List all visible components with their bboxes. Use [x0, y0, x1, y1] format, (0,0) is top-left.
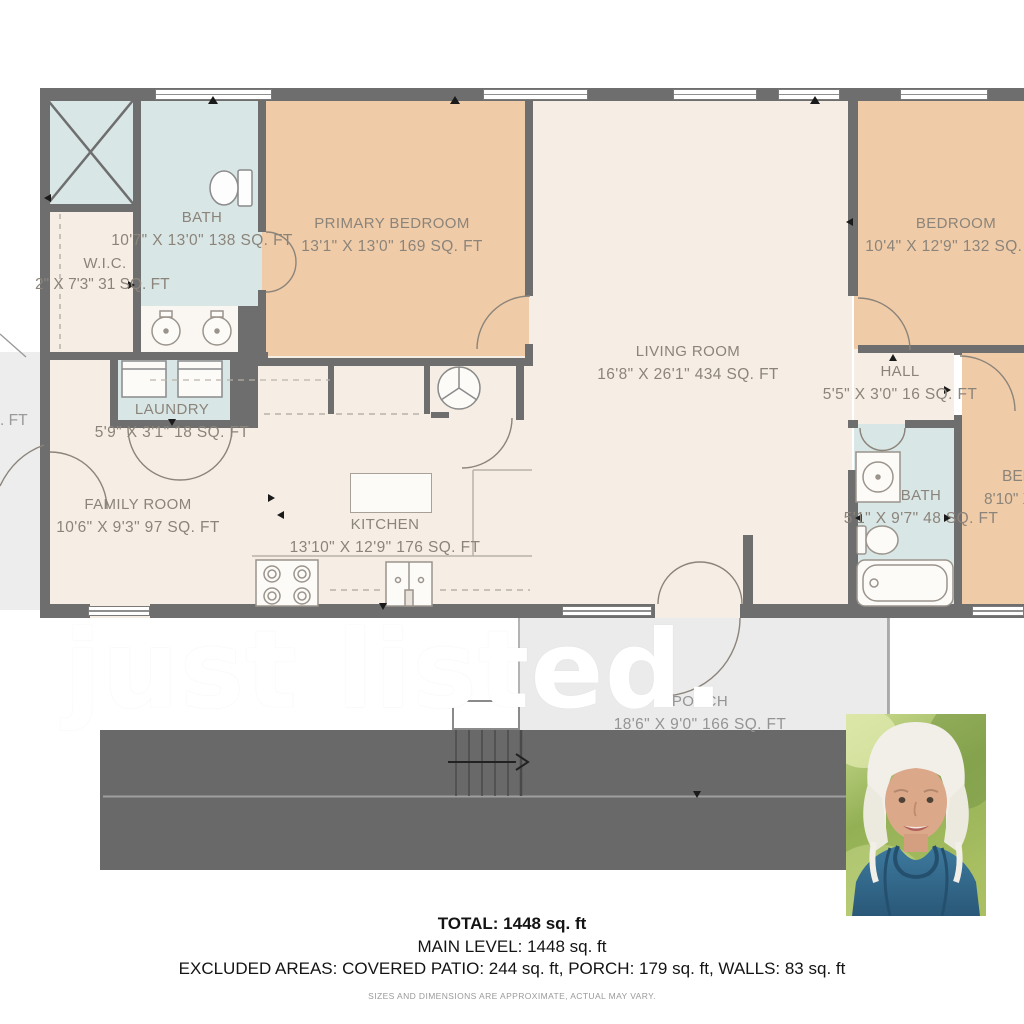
window	[673, 89, 757, 100]
room-name: LAUNDRY	[42, 398, 302, 421]
wall	[858, 345, 1024, 353]
disclaimer-text: SIZES AND DIMENSIONS ARE APPROXIMATE, AC…	[0, 991, 1024, 1001]
label-primary-bedroom: PRIMARY BEDROOM 13'1" X 13'0" 169 SQ. FT	[262, 212, 522, 258]
window	[155, 89, 272, 100]
room-dims: 5'5" X 3'0" 16 SQ. FT	[770, 383, 1024, 406]
covered-patio-band	[100, 730, 890, 870]
wall	[516, 366, 524, 420]
bath-vanity-area	[141, 306, 238, 352]
room-dims: 13'10" X 12'9" 176 SQ. FT	[255, 536, 515, 559]
room-dims: 13'1" X 13'0" 169 SQ. FT	[262, 235, 522, 258]
wall	[424, 366, 430, 414]
room-name: KITCHEN	[255, 513, 515, 536]
floorplan-flyer: BATH 10'7" X 13'0" 138 SQ. FT W.I.C. 2" …	[0, 0, 1024, 1024]
label-hall: HALL 5'5" X 3'0" 16 SQ. FT	[770, 360, 1024, 406]
window	[778, 89, 840, 100]
summary-block: TOTAL: 1448 sq. ft MAIN LEVEL: 1448 sq. …	[0, 913, 1024, 981]
label-bedroom-right-dims: 8'10" X 1	[984, 491, 1024, 509]
summary-total: TOTAL: 1448 sq. ft	[0, 913, 1024, 936]
room-name: FAMILY ROOM	[8, 493, 268, 516]
window	[900, 89, 988, 100]
wall	[848, 96, 858, 296]
kitchen-island	[350, 473, 432, 513]
wall	[328, 366, 334, 414]
room-dims: 5'9" X 3'1" 18 SQ. FT	[42, 421, 302, 444]
wall	[431, 412, 449, 418]
summary-excluded: EXCLUDED AREAS: COVERED PATIO: 244 sq. f…	[0, 958, 1024, 981]
window	[972, 606, 1024, 616]
room-dims: 5'1" X 9'7" 48 SQ. FT	[790, 507, 1024, 530]
label-bedroom-right-name: BEDROOM	[1002, 468, 1024, 486]
wall	[525, 344, 533, 366]
wall	[848, 420, 858, 428]
room-dims: 10'6" X 9'3" 97 SQ. FT	[8, 516, 268, 539]
room-name: HALL	[770, 360, 1024, 383]
wall	[954, 345, 962, 355]
room-shower	[44, 96, 139, 208]
label-left-partial-name: 0	[0, 388, 1, 406]
watermark-text: just listed.	[64, 608, 725, 733]
label-left-partial-dims: . FT	[0, 412, 28, 430]
wall	[525, 96, 533, 296]
wall	[743, 535, 753, 605]
label-kitchen: KITCHEN 13'10" X 12'9" 176 SQ. FT	[255, 513, 515, 559]
label-family-room: FAMILY ROOM 10'6" X 9'3" 97 SQ. FT	[8, 493, 268, 539]
label-wic-dims: 2" X 7'3" 31 SQ. FT	[35, 276, 170, 294]
room-name: W.I.C.	[0, 252, 210, 275]
room-dims: 10'4" X 12'9" 132 SQ. FT	[826, 235, 1024, 258]
label-laundry: LAUNDRY 5'9" X 3'1" 18 SQ. FT	[42, 398, 302, 444]
wall	[256, 358, 533, 366]
wall	[238, 306, 266, 352]
room-name: BEDROOM	[826, 212, 1024, 235]
label-wic: W.I.C.	[0, 252, 210, 275]
summary-main-level: MAIN LEVEL: 1448 sq. ft	[0, 936, 1024, 959]
wall	[44, 352, 268, 360]
agent-photo	[846, 714, 986, 916]
label-bedroom-top: BEDROOM 10'4" X 12'9" 132 SQ. FT	[826, 212, 1024, 258]
window	[483, 89, 588, 100]
left-exterior-area	[0, 352, 44, 610]
room-name: PRIMARY BEDROOM	[262, 212, 522, 235]
